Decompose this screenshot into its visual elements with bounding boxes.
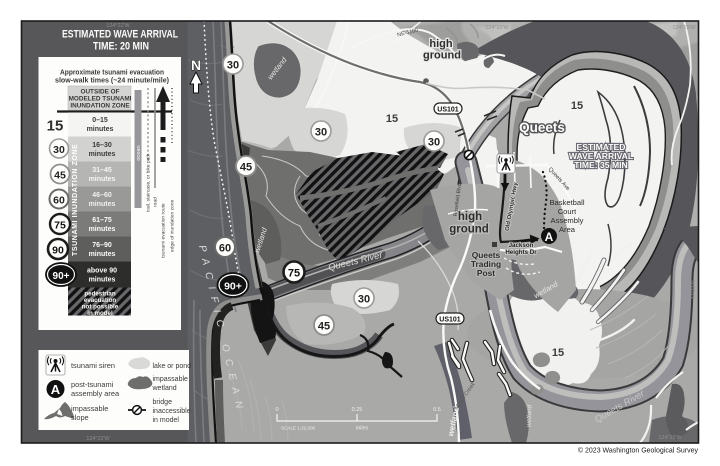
svg-text:wetland: wetland: [526, 404, 534, 427]
svg-text:75: 75: [288, 268, 300, 280]
svg-text:in model: in model: [153, 417, 180, 424]
svg-text:slow-walk times (~24 minute/mi: slow-walk times (~24 minute/mile): [55, 76, 170, 85]
svg-text:46–60: 46–60: [92, 192, 112, 199]
svg-text:124°20'W: 124°20'W: [485, 25, 509, 31]
svg-text:minutes: minutes: [89, 226, 116, 233]
svg-text:15: 15: [571, 100, 583, 112]
svg-text:15: 15: [47, 118, 64, 135]
svg-text:US101: US101: [437, 107, 459, 114]
svg-text:124°22'W: 124°22'W: [86, 436, 110, 442]
svg-text:tsunami evacuation route: tsunami evacuation route: [161, 203, 167, 258]
svg-text:INUNDATION ZONE: INUNDATION ZONE: [70, 103, 130, 110]
svg-text:tsunami siren: tsunami siren: [71, 361, 115, 370]
svg-text:bridge: bridge: [153, 399, 173, 406]
svg-text:31–45: 31–45: [92, 167, 112, 174]
svg-text:15: 15: [386, 113, 398, 125]
svg-text:75: 75: [54, 219, 66, 231]
svg-text:SCALE 1:32,000: SCALE 1:32,000: [281, 426, 316, 431]
svg-text:MODELED TSUNAMI: MODELED TSUNAMI: [69, 96, 132, 103]
svg-text:slope: slope: [71, 413, 89, 422]
svg-text:road: road: [153, 197, 159, 207]
svg-text:0: 0: [275, 407, 278, 413]
svg-text:minutes: minutes: [87, 126, 114, 133]
svg-text:TIME: 35 MIN: TIME: 35 MIN: [574, 160, 627, 170]
svg-text:0.25: 0.25: [352, 407, 363, 413]
svg-text:90+: 90+: [53, 271, 70, 282]
svg-text:high: high: [429, 38, 452, 50]
svg-text:ground: ground: [449, 224, 489, 236]
svg-text:trail, staircase, or bike path: trail, staircase, or bike path: [146, 153, 152, 212]
svg-text:124°19'W: 124°19'W: [658, 435, 682, 441]
svg-text:minutes: minutes: [89, 201, 116, 208]
svg-text:30: 30: [315, 127, 327, 139]
svg-text:post-tsunami: post-tsunami: [71, 380, 114, 389]
svg-text:A: A: [545, 230, 554, 244]
svg-text:Heights Dr: Heights Dr: [505, 249, 537, 256]
svg-text:60: 60: [219, 243, 231, 255]
svg-text:ESTIMATED WAVE ARRIVAL: ESTIMATED WAVE ARRIVAL: [62, 29, 178, 41]
svg-text:15: 15: [552, 347, 564, 359]
svg-text:miles: miles: [356, 426, 369, 432]
svg-text:76–90: 76–90: [92, 242, 112, 249]
svg-text:assembly area: assembly area: [71, 389, 120, 398]
svg-text:0.5: 0.5: [433, 407, 441, 413]
svg-text:90+: 90+: [224, 281, 242, 293]
svg-text:90: 90: [52, 244, 64, 256]
svg-text:Basketball: Basketball: [549, 198, 584, 207]
svg-text:61–75: 61–75: [92, 217, 112, 224]
svg-text:N: N: [191, 57, 201, 73]
svg-text:high: high: [458, 211, 482, 223]
svg-text:© 2023 Washington Geological S: © 2023 Washington Geological Survey: [578, 447, 699, 455]
svg-text:Jackson: Jackson: [509, 242, 534, 249]
svg-text:ground: ground: [423, 50, 461, 62]
svg-text:Assembly: Assembly: [551, 216, 584, 225]
svg-text:in model: in model: [87, 310, 113, 317]
svg-text:Queets: Queets: [519, 120, 565, 135]
svg-text:above 90: above 90: [87, 268, 117, 275]
svg-text:45: 45: [54, 169, 66, 181]
svg-text:47°33'N: 47°33'N: [691, 280, 697, 299]
svg-text:impassable: impassable: [71, 404, 108, 413]
svg-text:Court: Court: [558, 207, 577, 216]
svg-text:30: 30: [358, 294, 370, 306]
svg-text:minutes: minutes: [89, 277, 116, 284]
svg-text:30: 30: [428, 137, 440, 149]
svg-text:45: 45: [240, 162, 252, 174]
svg-text:minutes: minutes: [89, 176, 116, 183]
svg-text:TSUNAMI INUNDATION ZONE: TSUNAMI INUNDATION ZONE: [72, 144, 79, 256]
svg-text:edge of inundation zone: edge of inundation zone: [170, 200, 176, 252]
svg-text:45: 45: [318, 321, 330, 333]
svg-text:OUTSIDE OF: OUTSIDE OF: [80, 89, 119, 96]
svg-text:16–30: 16–30: [92, 142, 112, 149]
svg-text:minutes: minutes: [89, 151, 116, 158]
svg-text:A: A: [51, 382, 61, 397]
svg-text:US101: US101: [439, 317, 461, 324]
svg-text:60: 60: [53, 194, 65, 206]
svg-text:124°19'W: 124°19'W: [672, 25, 696, 31]
svg-text:30: 30: [227, 60, 239, 72]
svg-text:30: 30: [53, 144, 65, 156]
svg-text:ocean: ocean: [136, 145, 142, 160]
svg-text:Area: Area: [559, 225, 576, 234]
svg-text:Post: Post: [477, 268, 495, 278]
svg-text:wetland: wetland: [152, 385, 177, 392]
svg-text:TIME: 20 MIN: TIME: 20 MIN: [93, 41, 149, 53]
svg-text:inaccessible: inaccessible: [153, 408, 191, 415]
svg-text:0–15: 0–15: [92, 117, 108, 124]
svg-text:minutes: minutes: [89, 251, 116, 258]
svg-text:impassable: impassable: [153, 376, 189, 383]
svg-text:lake or pond: lake or pond: [153, 363, 192, 370]
